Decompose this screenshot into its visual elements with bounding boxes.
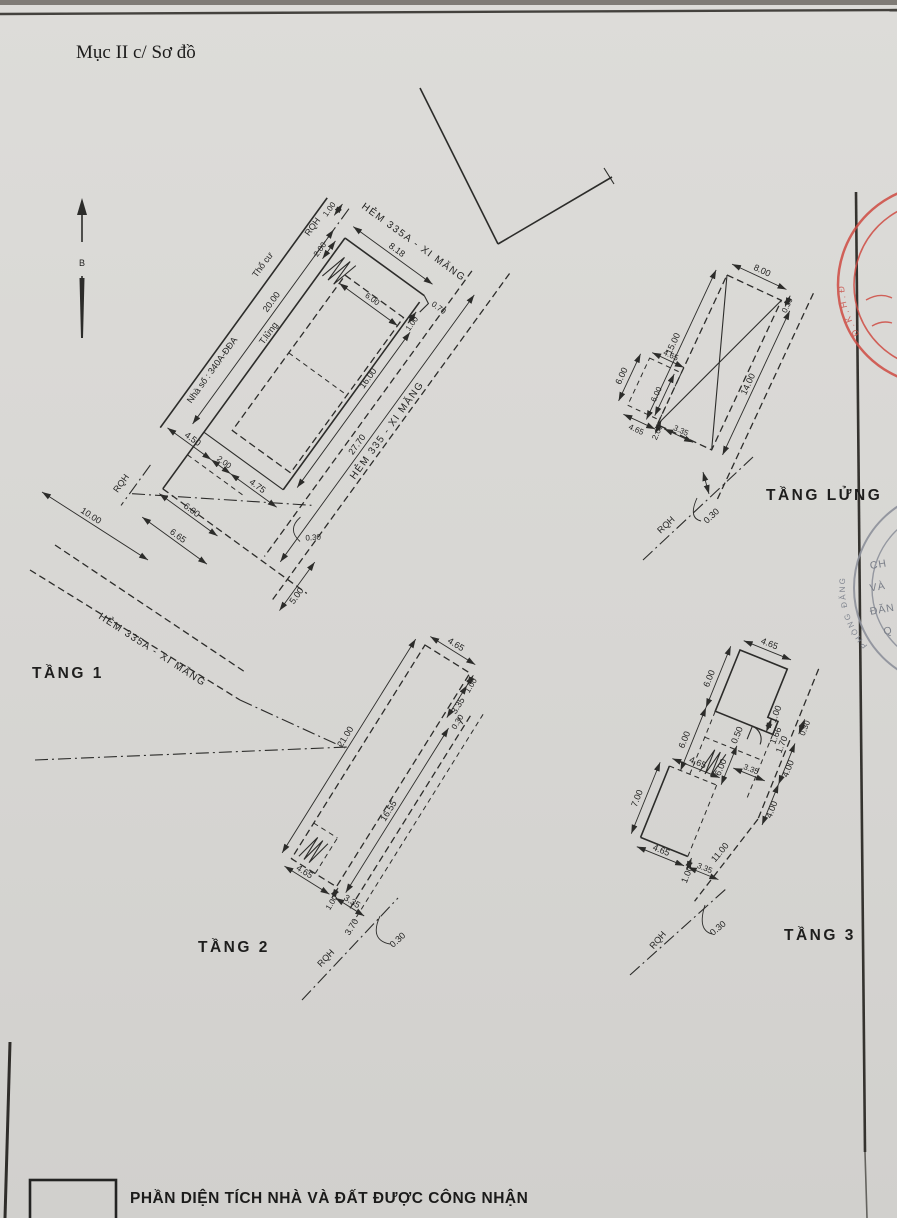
legend-text: PHẦN DIỆN TÍCH NHÀ VÀ ĐẤT ĐƯỢC CÔNG NHẬN [130, 1189, 528, 1207]
north-label: B [79, 258, 85, 268]
gray-stamp-line2: VÀ [869, 579, 887, 595]
paper-background [0, 0, 897, 1218]
floor3-label: TẦNG 3 [784, 927, 856, 944]
floor1-dim-offset: 0.30 [305, 533, 322, 543]
mezzanine-label: TẦNG LỬNG [766, 486, 882, 504]
floorplan-drawing: Mục II c/ Sơ đồ B [0, 0, 897, 1218]
floor1-label: TẦNG 1 [32, 665, 104, 682]
section-title: Mục II c/ Sơ đồ [76, 42, 196, 63]
scanned-floorplan-page: Mục II c/ Sơ đồ B [0, 0, 897, 1218]
floor2-label: TẦNG 2 [198, 939, 270, 956]
